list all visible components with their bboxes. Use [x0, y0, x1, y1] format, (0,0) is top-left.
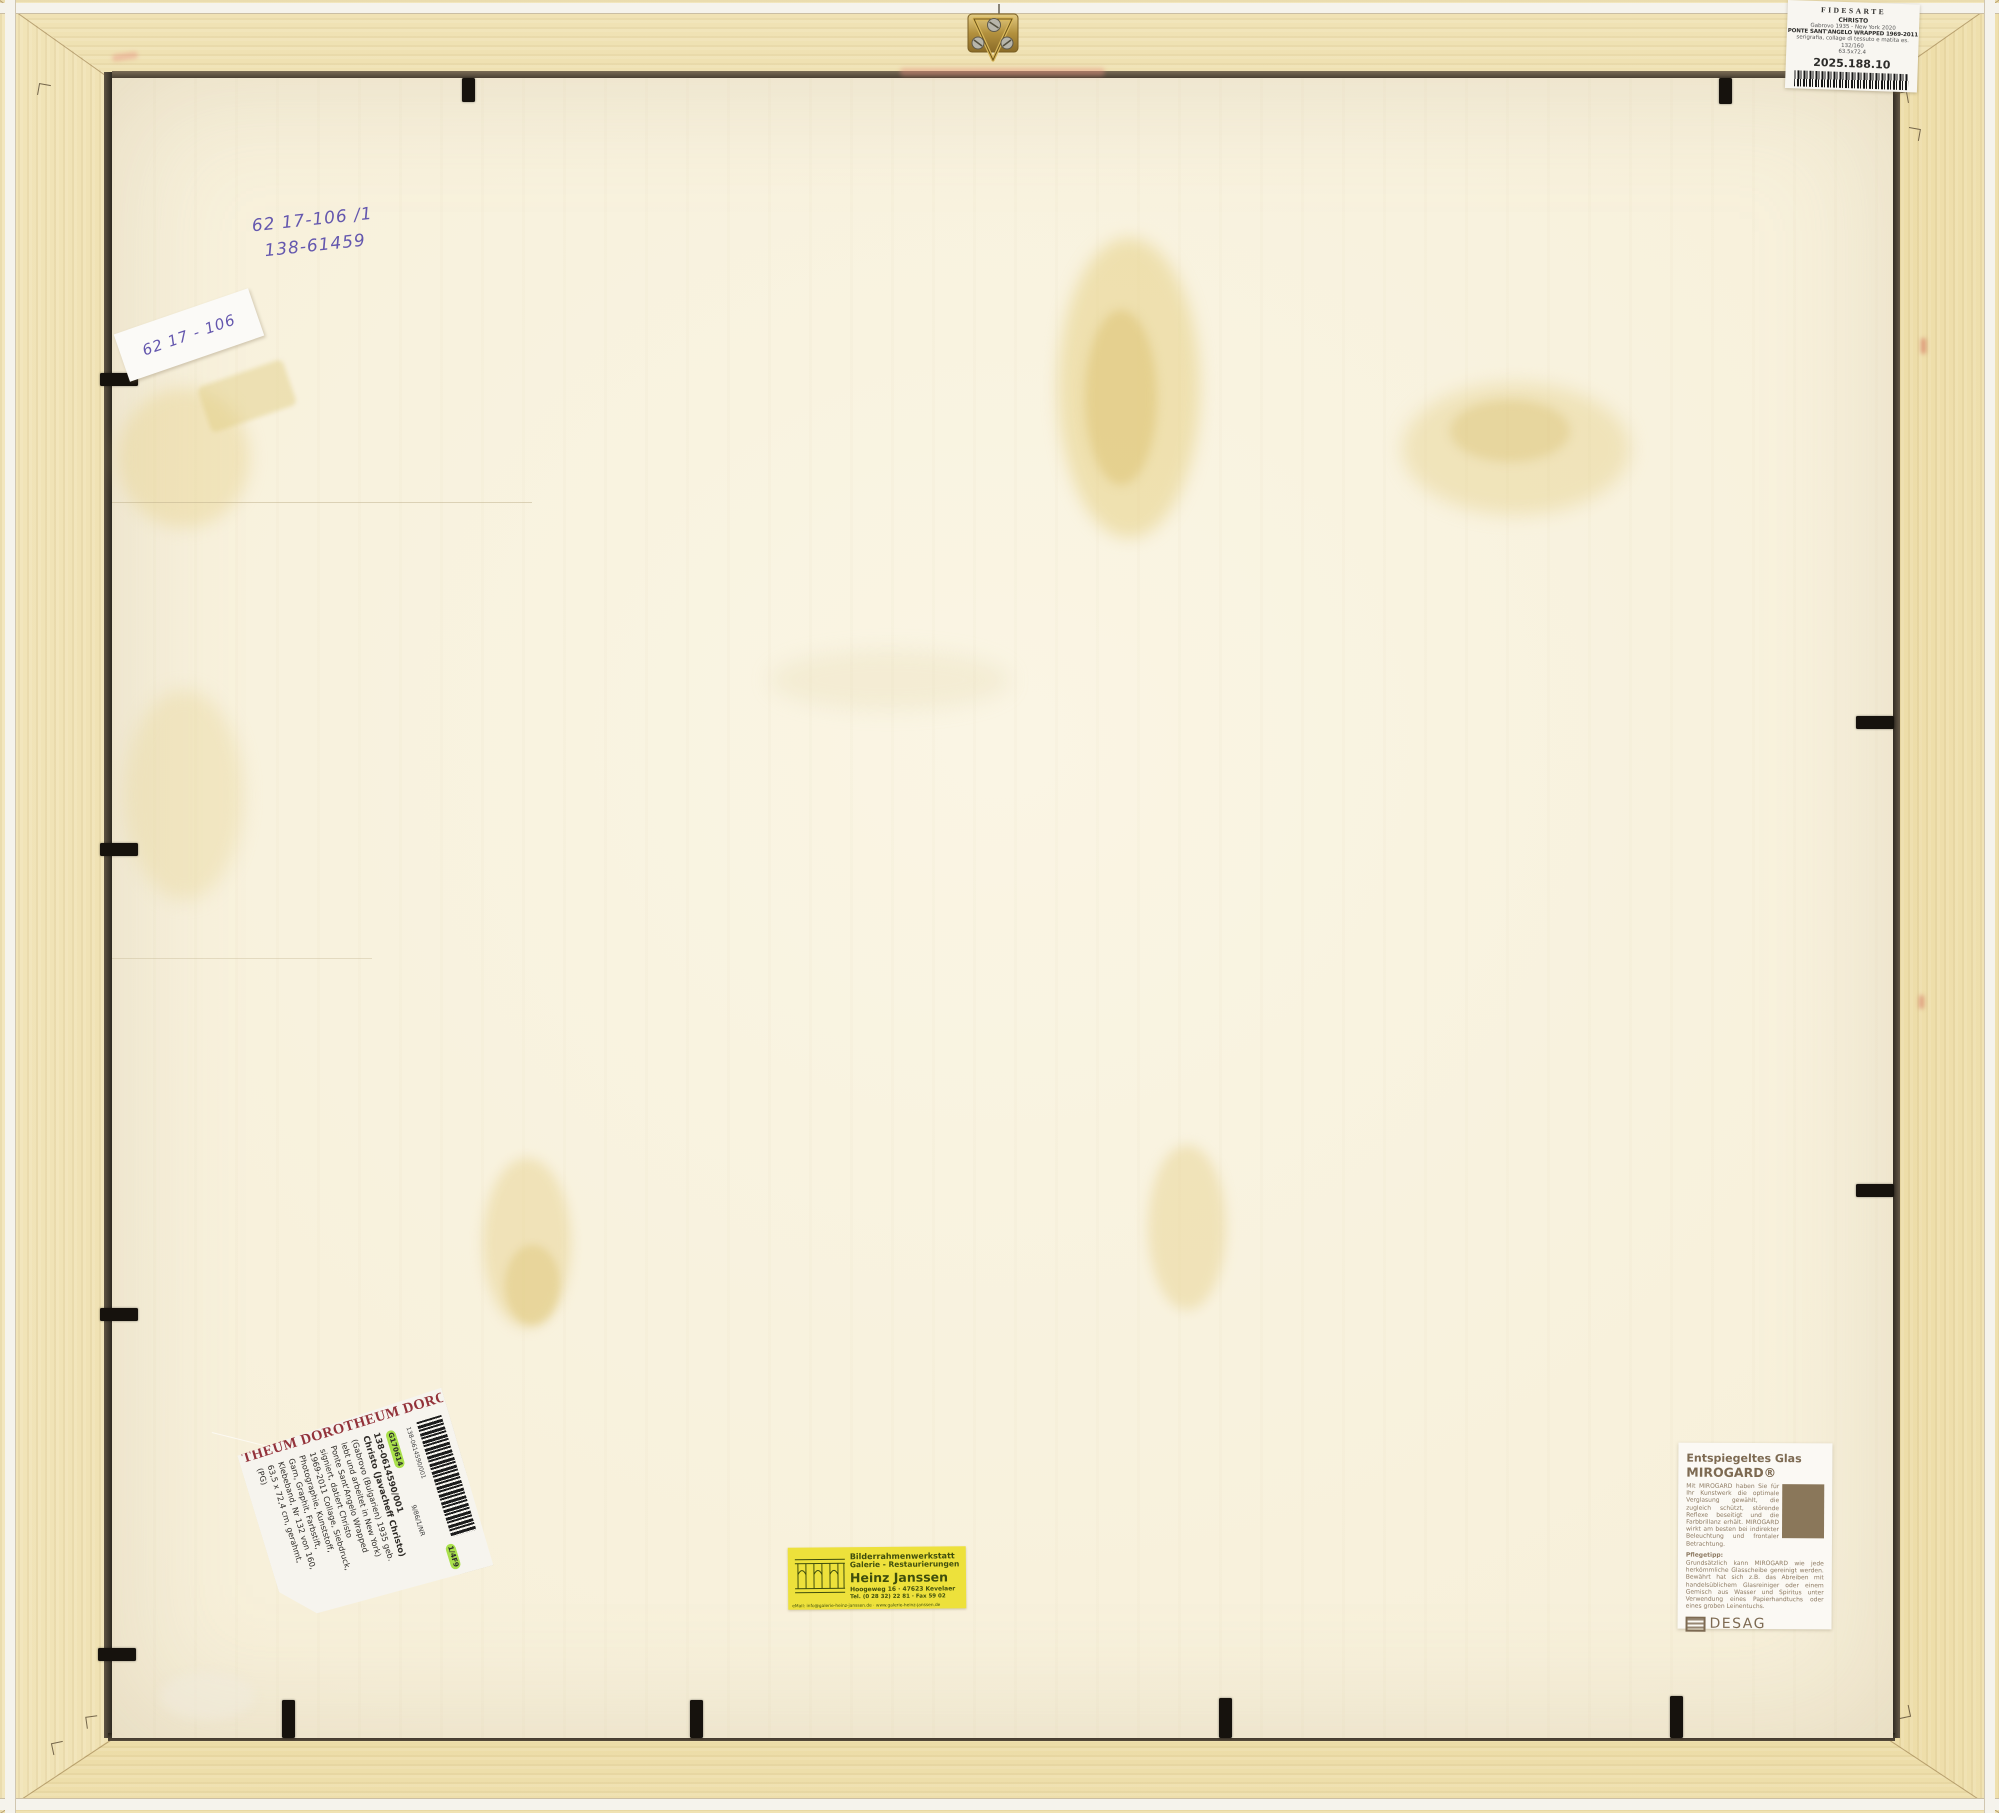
stain — [505, 1245, 560, 1325]
staple-mark — [51, 1741, 65, 1755]
mirogard-footer: DESAG — [1685, 1616, 1823, 1633]
retaining-clip — [98, 1648, 136, 1661]
retaining-clip — [1856, 716, 1894, 729]
staple-mark — [1907, 127, 1921, 141]
stain — [160, 1672, 255, 1720]
crease-line — [112, 502, 532, 503]
janssen-phone: Tel. (0 28 32) 22 81 · Fax 59 02 — [850, 1593, 962, 1600]
stain — [1450, 400, 1570, 462]
photo-backdrop: 62 17-106 /1 138-61459 62 17 - 106 FIDES… — [0, 0, 1999, 1813]
gallery-facade-icon — [793, 1554, 847, 1600]
stain — [770, 650, 1010, 710]
retaining-clip — [1670, 1696, 1683, 1738]
staple-mark — [37, 83, 51, 97]
janssen-label: Bilderrahmenwerkstatt Galerie - Restauri… — [788, 1546, 967, 1610]
rebate-gap-right — [1893, 72, 1900, 1738]
frame-outer-lip-left — [5, 0, 16, 1813]
dorotheum-badge-bottom: 1/4F9 — [445, 1543, 462, 1571]
janssen-text-block: Bilderrahmenwerkstatt Galerie - Restauri… — [850, 1551, 962, 1600]
retaining-clip — [1219, 1698, 1232, 1738]
desag-logo-icon — [1685, 1617, 1705, 1632]
retaining-clip — [100, 1308, 138, 1321]
hanger-icon — [958, 4, 1034, 66]
janssen-email-line: eMail: info@galerie-heinz-janssen.de · w… — [792, 1602, 971, 1609]
dorotheum-side-number: 9/86/1/NR — [410, 1504, 427, 1537]
desag-brand: DESAG — [1709, 1616, 1766, 1632]
paint-smudge — [900, 68, 1105, 76]
mirogard-label: Entspiegeltes Glas MIROGARD® Mit MIROGAR… — [1678, 1443, 1833, 1630]
retaining-clip — [690, 1700, 703, 1738]
fidesarte-label: FIDESARTE CHRISTO Gabrovo 1935 - New Yor… — [1785, 0, 1920, 93]
stain — [1085, 310, 1157, 485]
sample-artwork-thumbnail — [1782, 1484, 1824, 1538]
paint-smudge — [1919, 995, 1924, 1009]
janssen-name: Heinz Janssen — [850, 1570, 962, 1585]
barcode — [1794, 70, 1908, 90]
stain — [1148, 1145, 1226, 1310]
retaining-clip — [100, 843, 138, 856]
mirogard-title: Entspiegeltes Glas — [1686, 1452, 1824, 1466]
mirogard-tip-text: Grundsätzlich kann MIROGARD wie jede her… — [1686, 1560, 1824, 1611]
retaining-clip — [1719, 78, 1732, 104]
crease-line — [112, 958, 372, 959]
frame-outer-lip-bottom — [0, 1798, 1999, 1810]
mirogard-brand-title: MIROGARD® — [1686, 1465, 1824, 1481]
staple-mark — [1895, 91, 1909, 105]
mirogard-tip-heading: Pflegetipp: — [1686, 1551, 1824, 1559]
retaining-clip — [282, 1700, 295, 1738]
retaining-clip — [462, 78, 475, 102]
stain — [125, 690, 243, 900]
paint-smudge — [1921, 338, 1926, 354]
rebate-gap-left — [104, 72, 112, 1738]
frame-outer-lip-right — [1984, 0, 1995, 1813]
staple-mark — [1897, 1705, 1911, 1719]
hanging-bracket — [958, 4, 1034, 66]
retaining-clip — [1856, 1184, 1894, 1197]
staple-mark — [85, 1715, 99, 1729]
